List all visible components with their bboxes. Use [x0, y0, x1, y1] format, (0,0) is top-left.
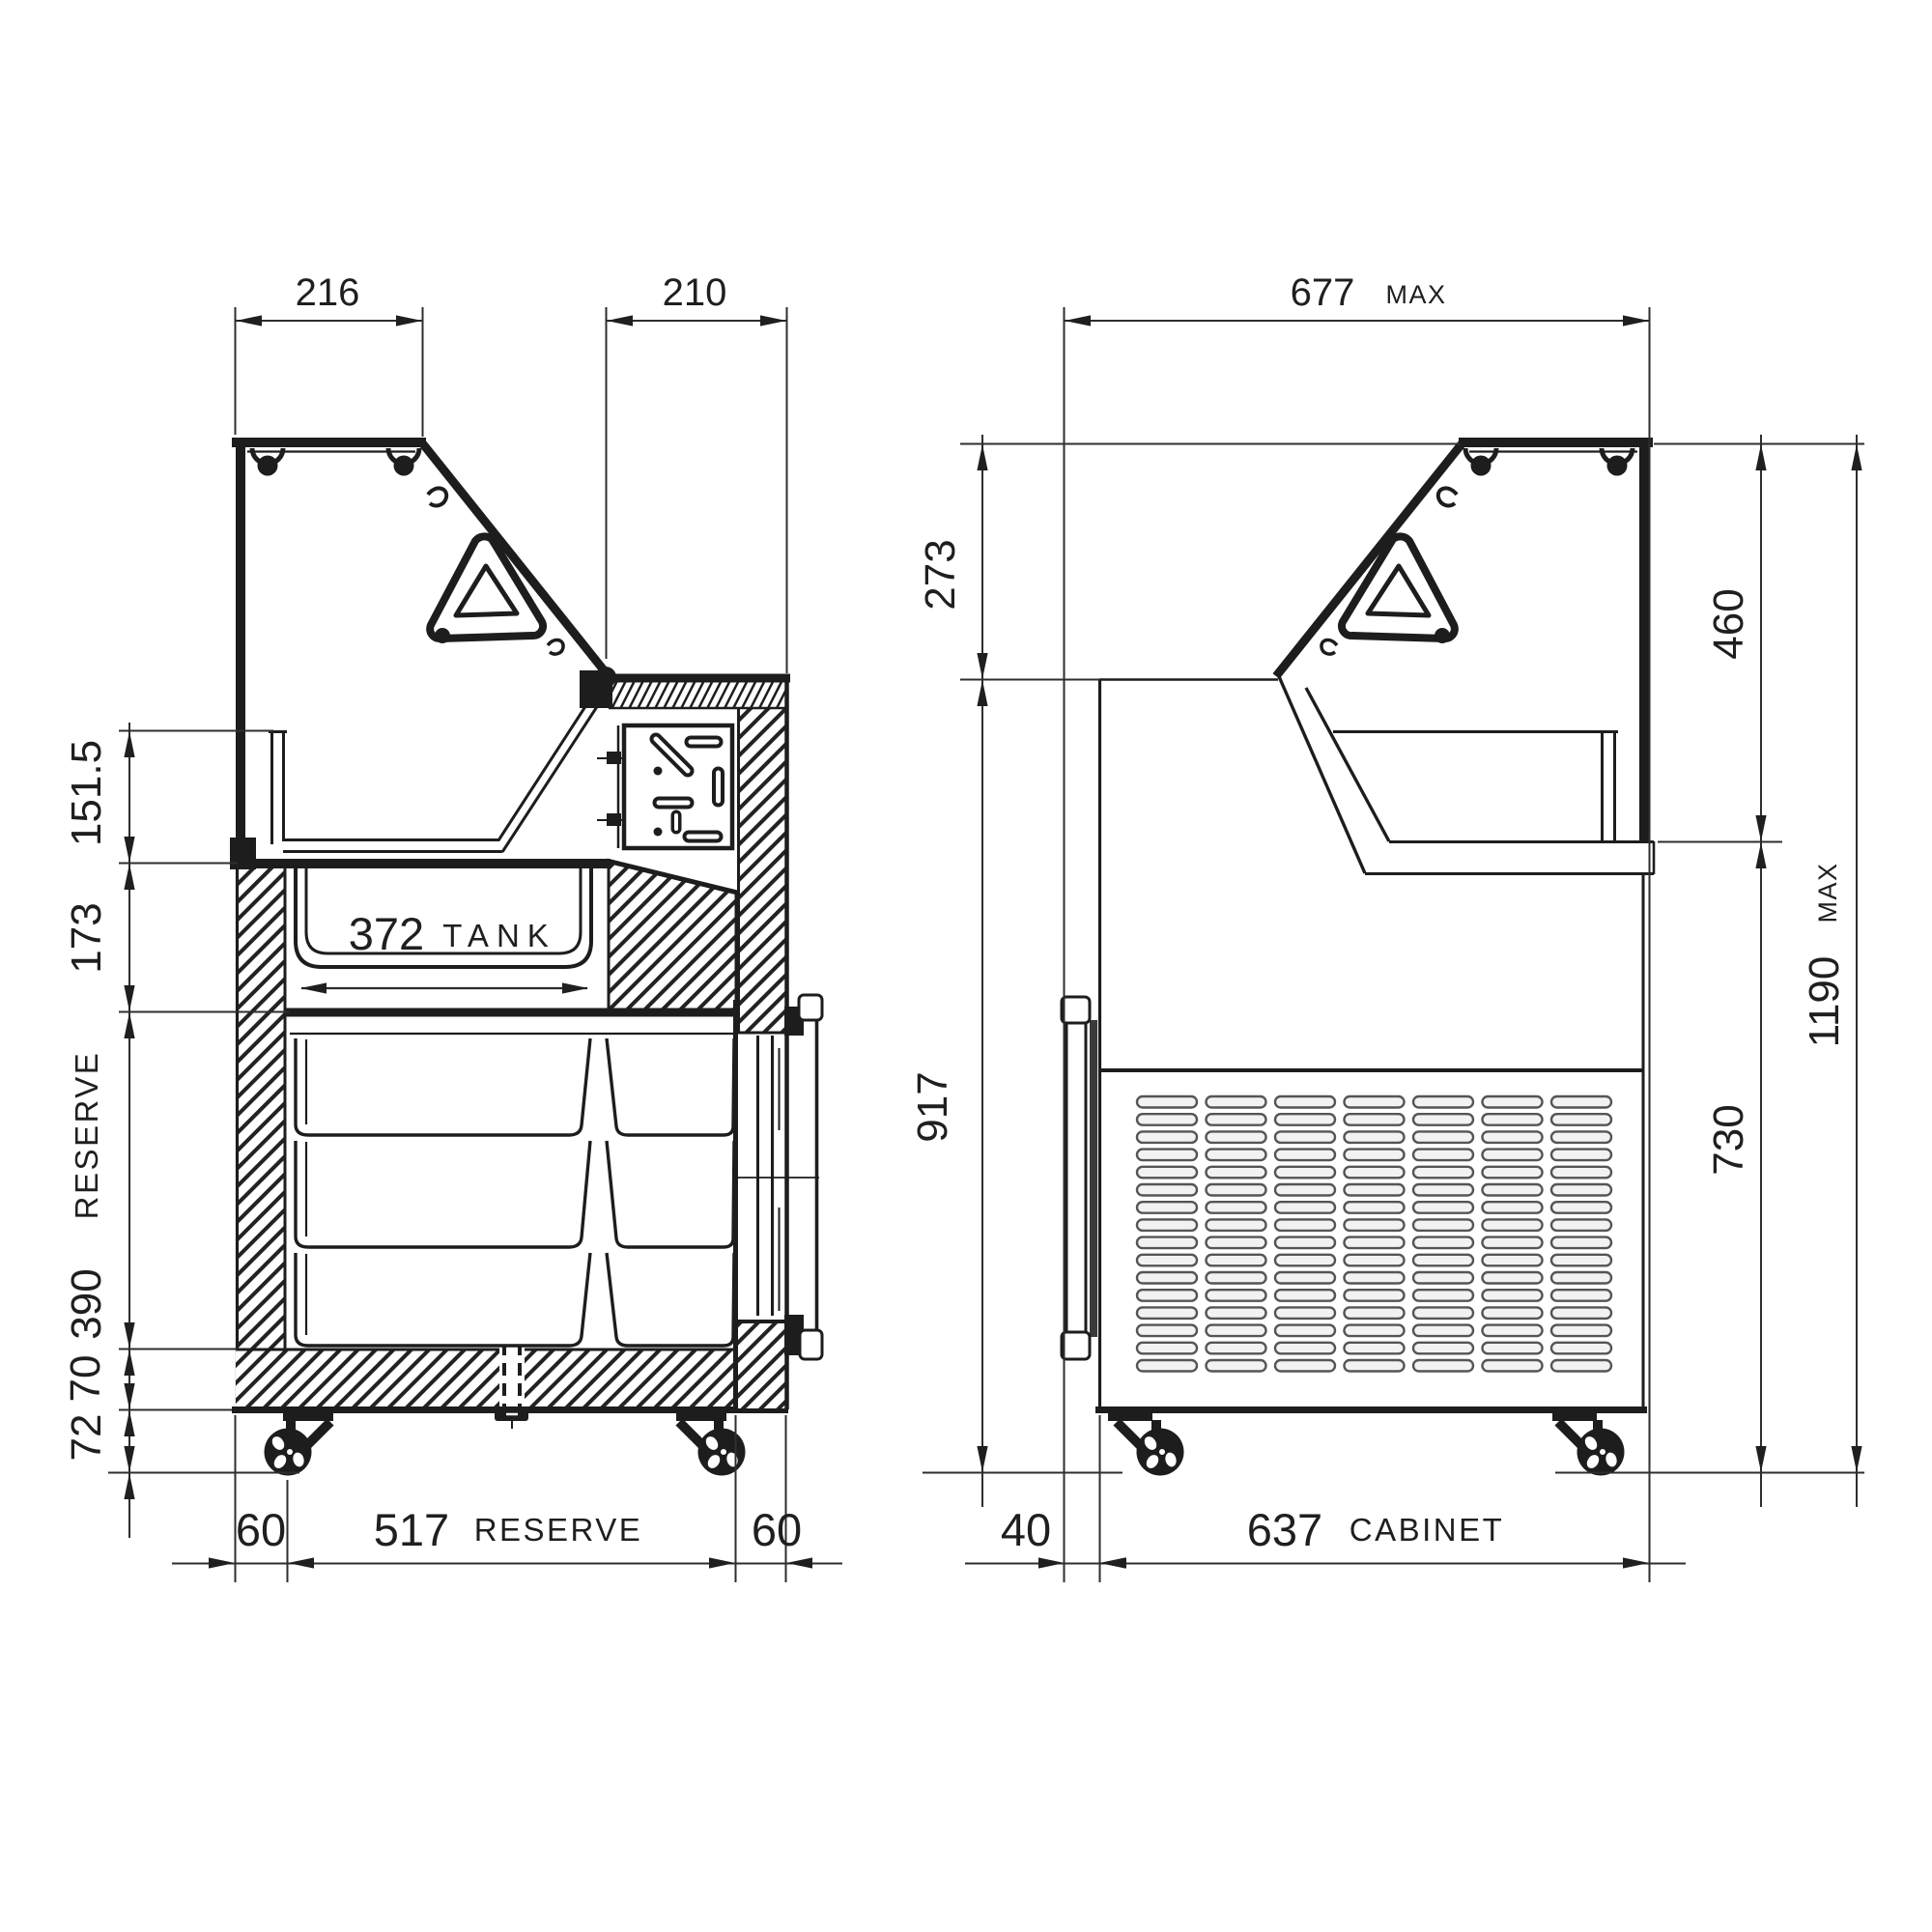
svg-text:460: 460 — [1705, 588, 1752, 659]
svg-text:CABINET: CABINET — [1350, 1512, 1505, 1548]
svg-text:MAX: MAX — [1813, 862, 1842, 923]
svg-text:MAX: MAX — [1385, 280, 1446, 309]
svg-text:372: 372 — [349, 908, 424, 959]
svg-text:TANK: TANK — [442, 918, 556, 953]
svg-text:60: 60 — [752, 1504, 802, 1555]
svg-text:60: 60 — [236, 1504, 286, 1555]
svg-text:RESERVE: RESERVE — [474, 1512, 643, 1548]
svg-text:273: 273 — [917, 539, 964, 610]
svg-text:70: 70 — [62, 1355, 109, 1403]
svg-text:677: 677 — [1291, 271, 1355, 314]
svg-text:517: 517 — [374, 1504, 449, 1555]
svg-text:730: 730 — [1705, 1104, 1752, 1175]
svg-text:151.5: 151.5 — [63, 740, 110, 846]
svg-text:637: 637 — [1247, 1504, 1322, 1555]
svg-text:1190: 1190 — [1801, 956, 1848, 1048]
svg-text:390: 390 — [63, 1268, 110, 1339]
svg-text:173: 173 — [63, 902, 110, 973]
svg-text:72: 72 — [63, 1414, 110, 1462]
svg-text:40: 40 — [1001, 1504, 1051, 1555]
svg-text:216: 216 — [296, 271, 360, 314]
svg-text:210: 210 — [663, 271, 727, 314]
svg-text:RESERVE: RESERVE — [69, 1051, 104, 1220]
svg-text:917: 917 — [909, 1071, 956, 1142]
